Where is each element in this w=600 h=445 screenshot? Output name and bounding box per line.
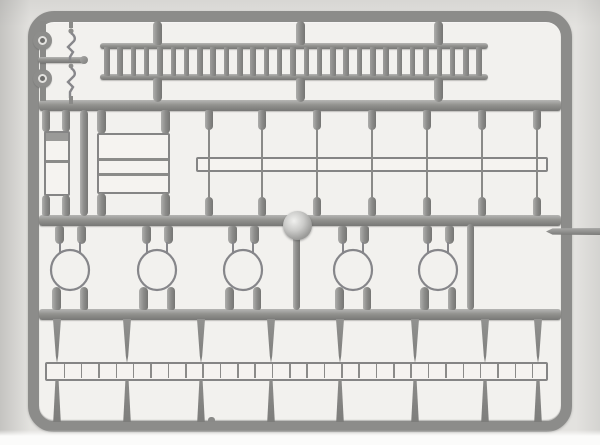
ladder-rung: [383, 47, 389, 76]
ladder-rung: [184, 47, 190, 76]
runner-gate: [205, 197, 213, 216]
frame-stub: [62, 110, 70, 132]
strip-divider: [168, 364, 170, 378]
strip-divider: [463, 364, 465, 378]
ladder-rung: [423, 47, 429, 76]
railing-frame-rung: [99, 158, 168, 161]
runner-wire: [371, 128, 373, 199]
center-runner: [293, 228, 300, 310]
runner-gate: [533, 197, 541, 216]
hoop-stub-bottom: [225, 287, 234, 310]
strip-divider: [376, 364, 378, 378]
ladder-stub-bottom: [434, 78, 443, 102]
ladder-rung: [317, 47, 323, 76]
strip-divider: [150, 364, 152, 378]
wheel-part: [33, 69, 52, 88]
wheel-stub: [40, 86, 46, 101]
runner-gate: [423, 197, 431, 216]
runner-stub: [368, 110, 376, 130]
strip-divider: [81, 364, 83, 378]
runner-gate: [313, 197, 321, 216]
runner-gate: [258, 197, 266, 216]
hoop-part: [219, 222, 267, 292]
frame-gate: [97, 193, 106, 216]
ladder-rung: [144, 47, 150, 76]
ladder-rung: [304, 47, 310, 76]
strip-divider: [497, 364, 499, 378]
hoop-stub-bottom: [420, 287, 429, 310]
strip-divider: [445, 364, 447, 378]
strip-divider: [133, 364, 135, 378]
injection-gate-knob: [283, 211, 312, 240]
ladder-rung: [343, 47, 349, 76]
small-frame-top-fill: [46, 133, 68, 141]
strip-divider: [272, 364, 274, 378]
ladder-stub-top: [434, 21, 443, 45]
railing-frame-rung: [99, 173, 168, 176]
external-runner-bar: [546, 228, 600, 235]
hoop-stub-bottom: [253, 287, 262, 310]
ladder-rung: [397, 47, 403, 76]
frame-gate: [62, 195, 70, 216]
wheel-hub: [40, 38, 45, 43]
frame-stub: [97, 110, 106, 134]
runner-stub: [258, 110, 266, 130]
ladder-rung: [237, 47, 243, 76]
flat-ladder-strip-part: [45, 362, 548, 381]
railing-frame-part: [97, 133, 170, 194]
ladder-rung: [410, 47, 416, 76]
hoop-part: [329, 222, 377, 292]
strip-divider: [185, 364, 187, 378]
hoop-stub-bottom: [139, 287, 148, 310]
small-frame-rung: [46, 160, 68, 163]
ladder-rung: [250, 47, 256, 76]
ladder-stub-bottom: [153, 78, 162, 102]
runner-gate: [478, 197, 486, 216]
strip-divider: [289, 364, 291, 378]
sprue-photo: [0, 0, 600, 445]
ladder-rungs: [100, 43, 488, 80]
frame-stub: [42, 110, 50, 132]
strip-divider: [202, 364, 204, 378]
runner-wire: [208, 128, 210, 199]
strip-divider: [428, 364, 430, 378]
ladder-rung: [476, 47, 482, 76]
vertical-runner: [467, 224, 474, 310]
sprue-rail-lower: [39, 309, 561, 320]
ladder-part: [100, 43, 488, 80]
hoop-stub-bottom: [363, 287, 372, 310]
strip-divider: [393, 364, 395, 378]
runner-wire: [481, 128, 483, 199]
wheel-stub: [40, 21, 46, 32]
runner-wire: [261, 128, 263, 199]
frame-gate: [161, 193, 170, 216]
ladder-stub-top: [296, 21, 305, 45]
runner-stub: [533, 110, 541, 130]
wheel-hub: [40, 76, 45, 81]
hoop-stub-bottom: [80, 287, 89, 310]
runner-stub: [313, 110, 321, 130]
strip-divider: [410, 364, 412, 378]
ladder-rung: [330, 47, 336, 76]
runner-stub: [478, 110, 486, 130]
ladder-rung: [197, 47, 203, 76]
runner-gate: [368, 197, 376, 216]
ladder-rung: [290, 47, 296, 76]
ladder-stub-top: [153, 21, 162, 45]
ladder-rung: [117, 47, 123, 76]
strip-divider: [324, 364, 326, 378]
hoop-stub-bottom: [335, 287, 344, 310]
vertical-runner: [80, 110, 88, 216]
strip-divider: [220, 364, 222, 378]
ladder-rung: [171, 47, 177, 76]
runner-wire: [316, 128, 318, 199]
ladder-rung: [450, 47, 456, 76]
strip-divider: [237, 364, 239, 378]
ladder-rung: [370, 47, 376, 76]
ladder-rung: [357, 47, 363, 76]
ladder-stub-bottom: [296, 78, 305, 102]
ladder-rung: [157, 47, 163, 76]
ladder-rung: [224, 47, 230, 76]
runner-wire: [426, 128, 428, 199]
strip-divider: [515, 364, 517, 378]
hoop-part: [133, 222, 181, 292]
hoop-stub-bottom: [52, 287, 61, 310]
small-detail-parts: [58, 22, 86, 104]
runner-stub: [423, 110, 431, 130]
hoop-stub-bottom: [448, 287, 457, 310]
wheel-stub: [40, 61, 46, 71]
hoop-part: [414, 222, 462, 292]
ladder-rung: [463, 47, 469, 76]
hoop-stub-bottom: [167, 287, 176, 310]
ladder-rung: [131, 47, 137, 76]
bottom-rail-nub: [208, 417, 215, 422]
strip-divider: [116, 364, 118, 378]
ladder-rung: [264, 47, 270, 76]
strip-divider: [64, 364, 66, 378]
strip-divider: [254, 364, 256, 378]
small-ladder-frame-part: [44, 131, 70, 196]
hoop-part: [46, 222, 94, 292]
strip-divider: [358, 364, 360, 378]
frame-gate: [42, 195, 50, 216]
ladder-rung: [277, 47, 283, 76]
strip-divider: [306, 364, 308, 378]
strip-divider: [480, 364, 482, 378]
frame-stub: [161, 110, 170, 134]
strip-divider: [98, 364, 100, 378]
strip-divider: [341, 364, 343, 378]
ladder-rung: [437, 47, 443, 76]
ladder-rung: [104, 47, 110, 76]
runner-stub: [205, 110, 213, 130]
strip-divider: [532, 364, 534, 378]
ladder-rung: [210, 47, 216, 76]
runner-wire: [536, 128, 538, 199]
